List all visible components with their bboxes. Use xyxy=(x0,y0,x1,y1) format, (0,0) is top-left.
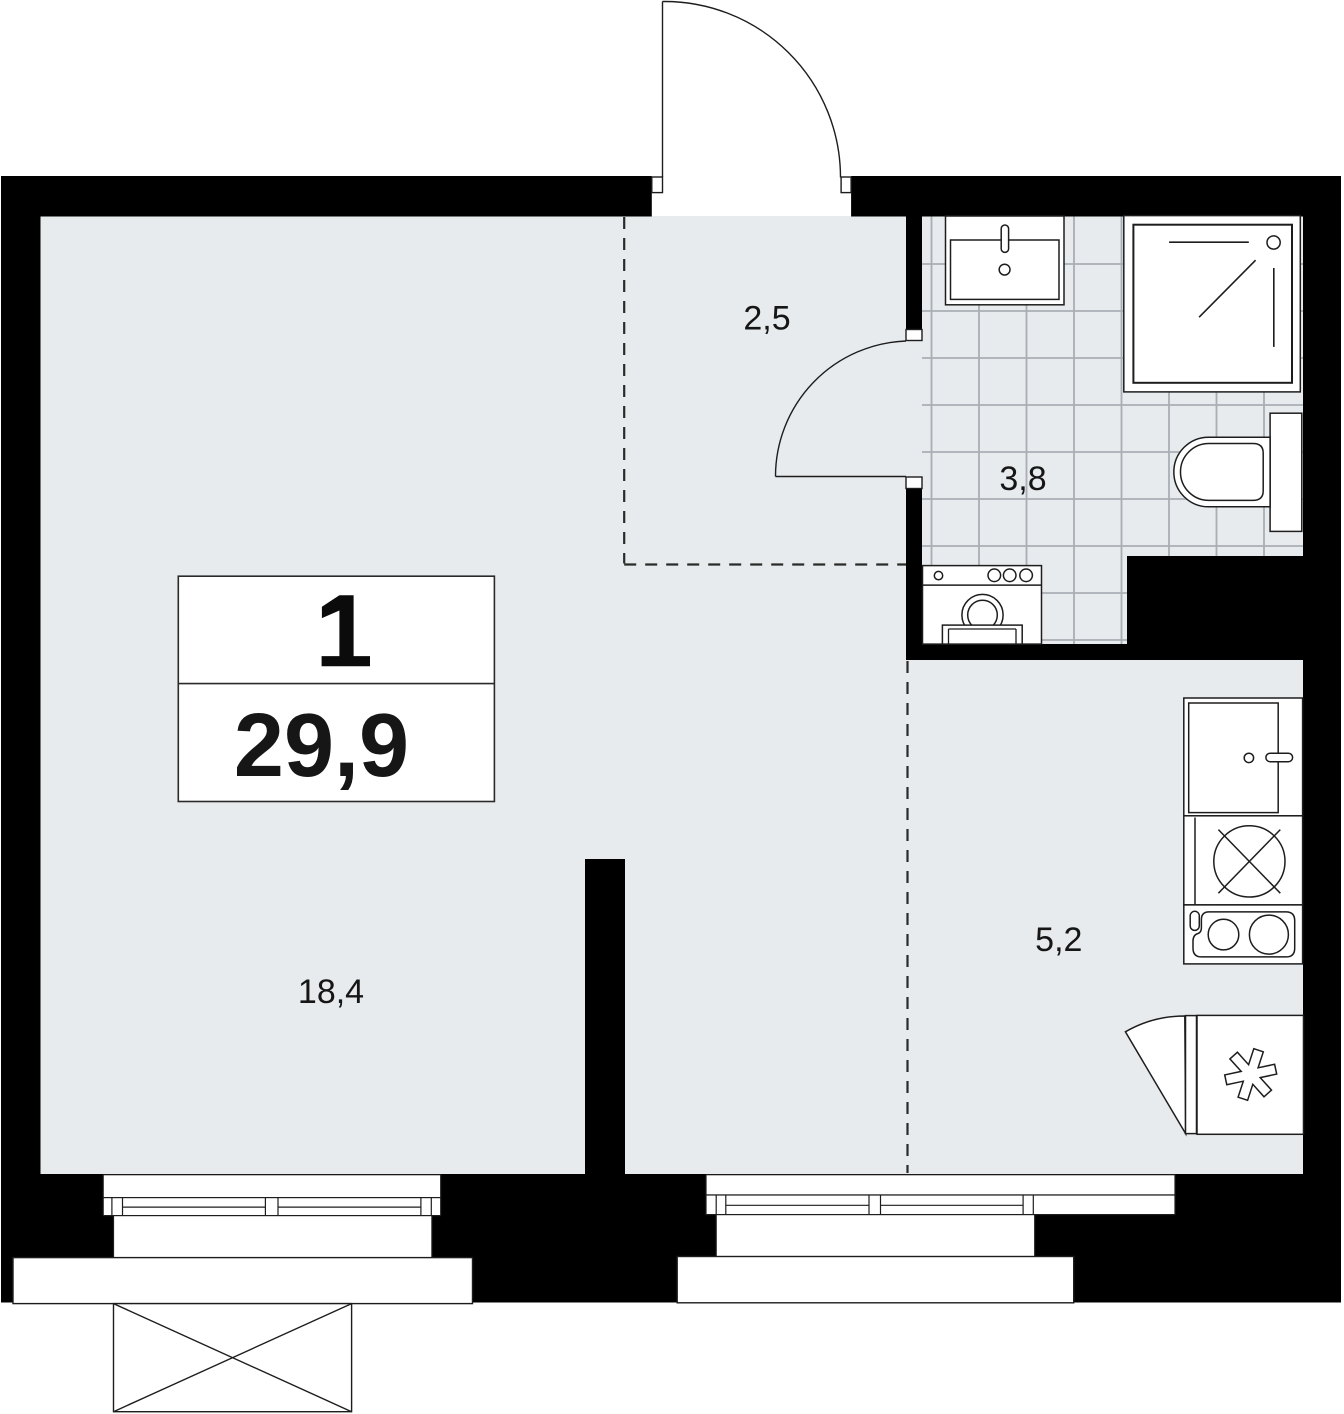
svg-text:18,4: 18,4 xyxy=(298,973,364,1011)
svg-text:29,9: 29,9 xyxy=(234,696,409,796)
svg-text:2,5: 2,5 xyxy=(743,300,790,338)
svg-text:5,2: 5,2 xyxy=(1035,921,1082,959)
svg-text:3,8: 3,8 xyxy=(999,460,1046,498)
